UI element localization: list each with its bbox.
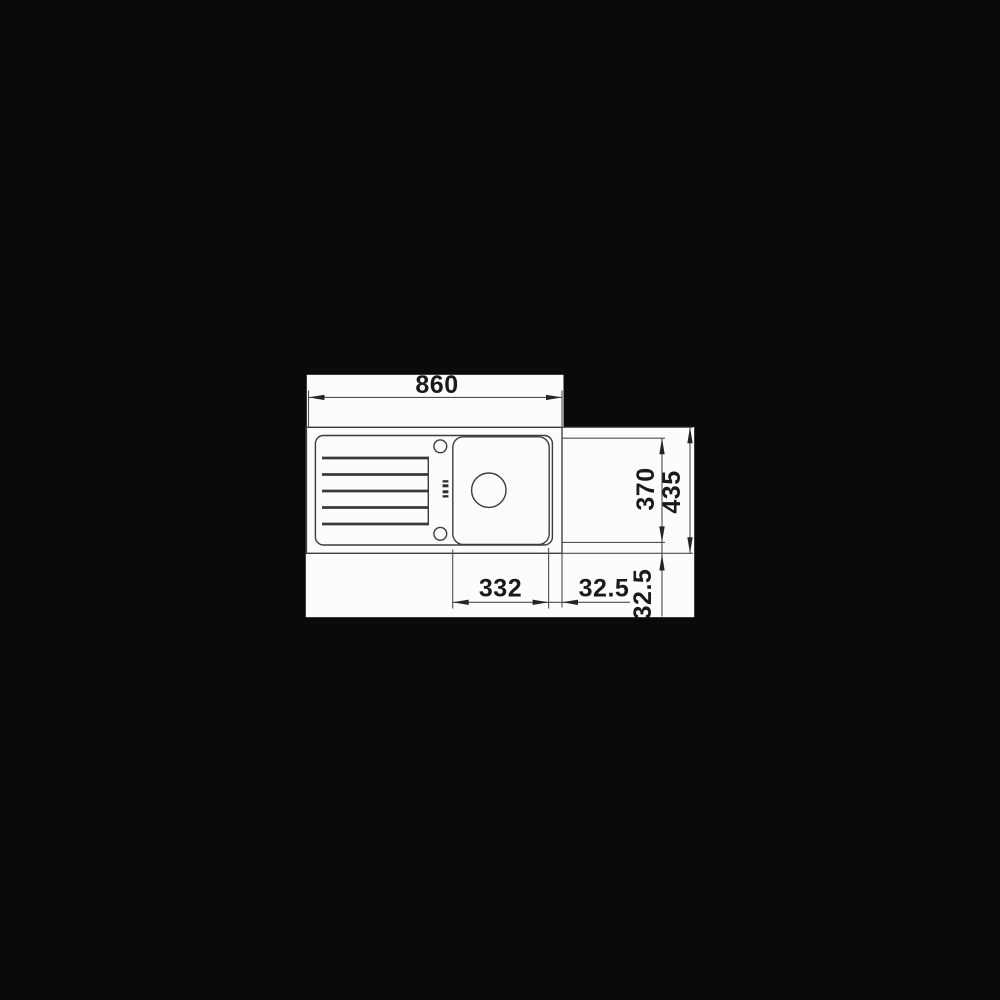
clip-mark-bar: [443, 490, 449, 493]
sink-dimension-drawing: 860 332 32.5 370 435 32.5: [0, 0, 1000, 1000]
dim-label-offset-bottom: 32.5: [629, 569, 657, 620]
dim-label-inner-width: 370: [632, 467, 660, 510]
dim-label-bowl-length: 332: [479, 575, 522, 603]
page-background: 860 332 32.5 370 435 32.5: [0, 0, 1000, 1000]
clip-mark-bar: [443, 495, 449, 497]
clip-mark-bar: [443, 480, 449, 482]
dim-label-overall-length: 860: [415, 371, 458, 399]
dim-label-offset-right: 32.5: [579, 575, 630, 603]
dim-label-overall-width: 435: [658, 470, 686, 513]
clip-mark-bar: [443, 484, 449, 487]
